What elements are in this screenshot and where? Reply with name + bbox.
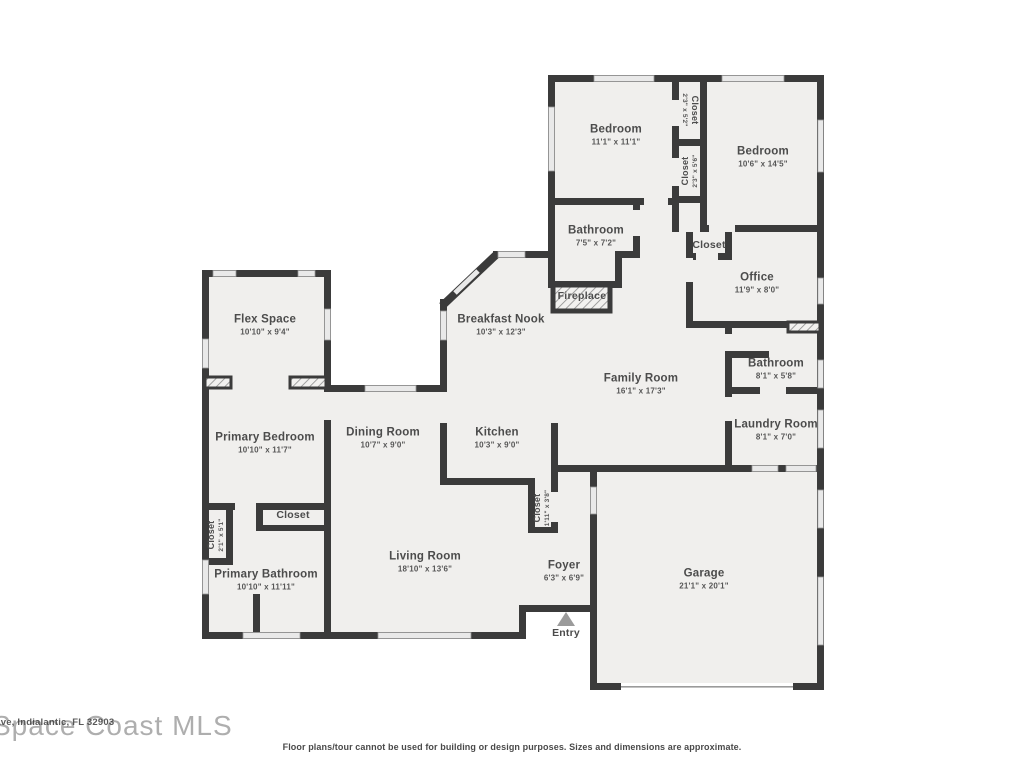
entry-arrow-icon bbox=[557, 612, 575, 626]
room-label-kitchen: Kitchen 10'3" x 9'0" bbox=[475, 425, 520, 450]
room-label-closet-primary-hall: Closet 2'1" x 5'1" bbox=[206, 518, 226, 551]
room-label-living-room: Living Room 18'10" x 13'6" bbox=[389, 549, 461, 574]
room-label-fireplace: Fireplace bbox=[558, 290, 607, 304]
floor-plan: Bedroom 11'1" x 11'1" Closet 2'3" x 5'2"… bbox=[0, 0, 1024, 768]
room-label-primary-bedroom: Primary Bedroom 10'10" x 11'7" bbox=[215, 430, 315, 455]
room-label-laundry-room: Laundry Room 8'1" x 7'0" bbox=[734, 417, 818, 442]
room-label-closet-bedroom-mid: Closet 2'3" x 5'6" bbox=[680, 154, 700, 187]
room-label-foyer: Foyer 6'3" x 6'9" bbox=[544, 558, 584, 583]
floor-plan-drawing bbox=[0, 0, 1024, 768]
room-label-entry: Entry bbox=[552, 627, 580, 641]
room-label-bathroom-2: Bathroom 8'1" x 5'8" bbox=[748, 356, 804, 381]
flex-wall-hatch-right bbox=[290, 377, 326, 388]
room-label-flex-space: Flex Space 10'10" x 9'4" bbox=[234, 312, 296, 337]
flex-wall-hatch-left bbox=[205, 377, 231, 388]
room-label-breakfast-nook: Breakfast Nook 10'3" x 12'3" bbox=[457, 312, 544, 337]
room-label-dining-room: Dining Room 10'7" x 9'0" bbox=[346, 425, 420, 450]
room-label-primary-bathroom: Primary Bathroom 10'10" x 11'11" bbox=[214, 567, 318, 592]
address-watermark: Ave, Indialantic, FL 32903 bbox=[0, 717, 114, 728]
office-wall-hatch bbox=[788, 322, 820, 332]
room-label-closet-foyer: Closet 1'11" x 3'8" bbox=[532, 490, 552, 527]
room-label-closet-bedroom-top: Closet 2'3" x 5'2" bbox=[680, 93, 700, 126]
room-label-bedroom-1: Bedroom 11'1" x 11'1" bbox=[590, 122, 642, 147]
room-label-bathroom-1: Bathroom 7'5" x 7'2" bbox=[568, 223, 624, 248]
room-label-garage: Garage 21'1" x 20'1" bbox=[679, 566, 729, 591]
room-label-closet-primary: Closet bbox=[276, 509, 309, 523]
room-label-office: Office 11'9" x 8'0" bbox=[735, 270, 780, 295]
garage-door bbox=[621, 683, 793, 690]
room-label-family-room: Family Room 16'1" x 17'3" bbox=[604, 371, 678, 396]
disclaimer-text: Floor plans/tour cannot be used for buil… bbox=[0, 742, 1024, 752]
room-label-bedroom-2: Bedroom 10'6" x 14'5" bbox=[737, 144, 789, 169]
room-label-closet-office: Closet bbox=[692, 239, 725, 253]
